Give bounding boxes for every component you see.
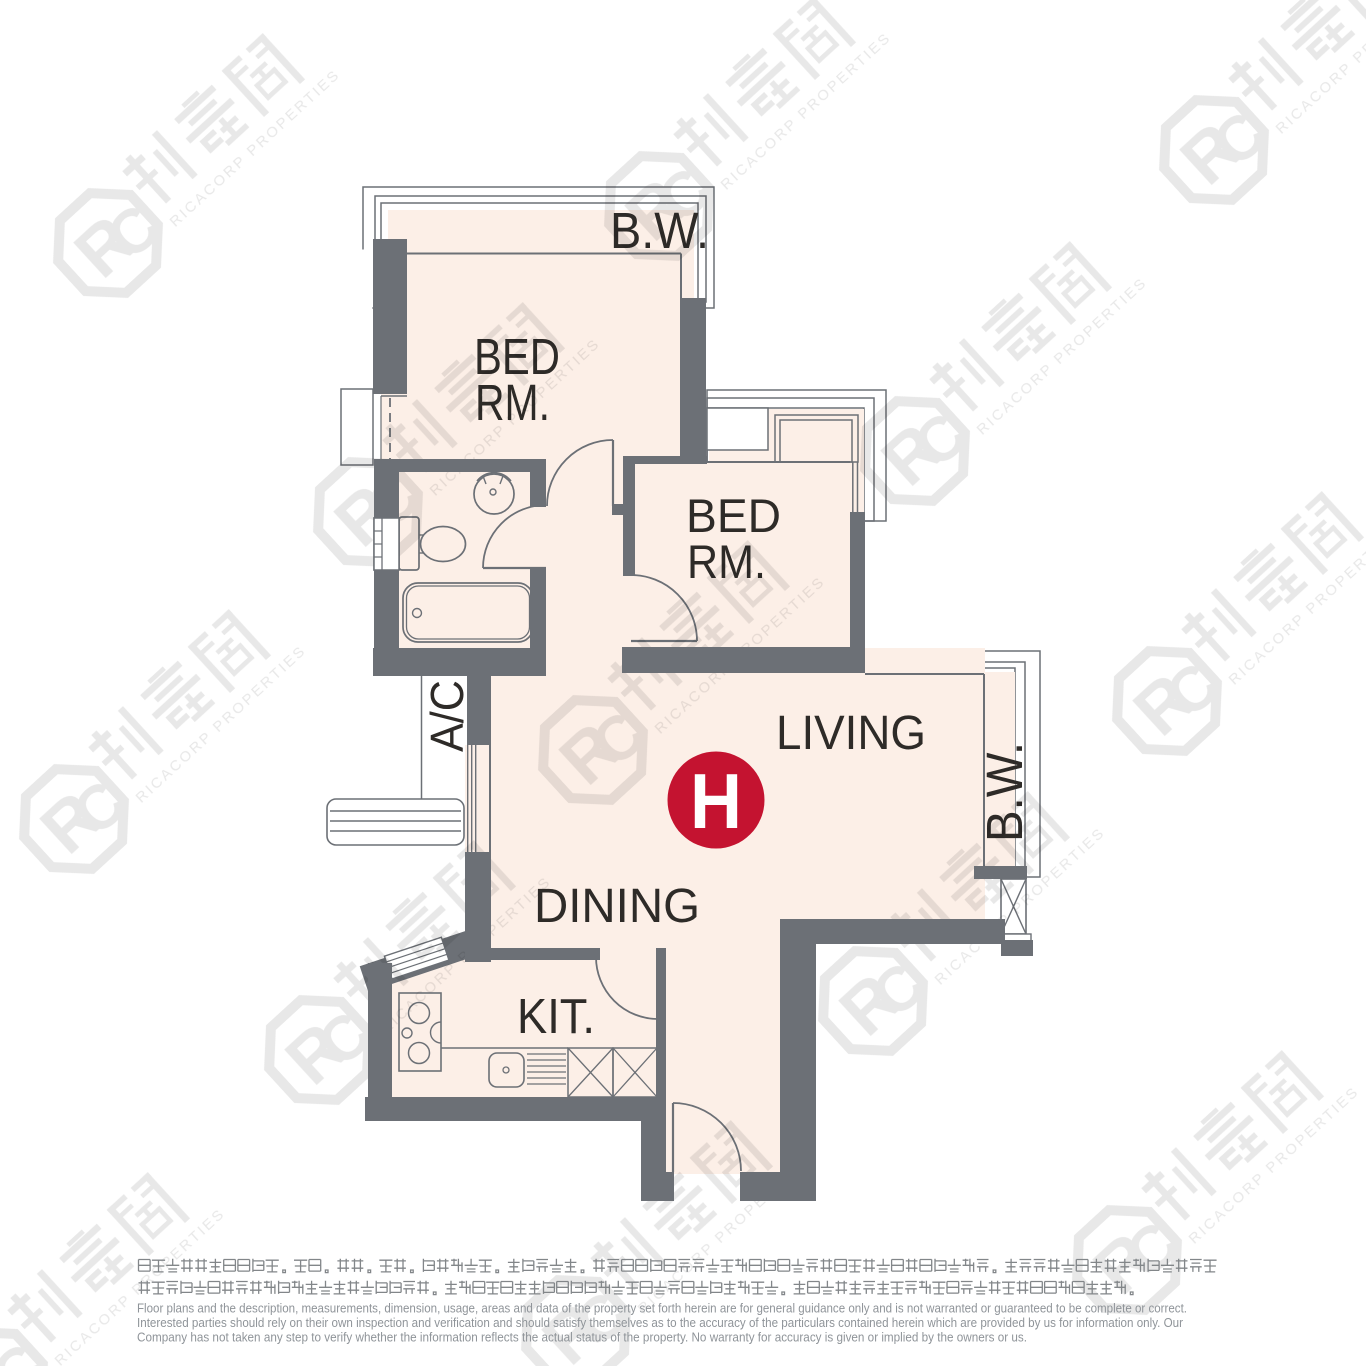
svg-text:Floor plans and the descriptio: Floor plans and the description, measure… — [137, 1301, 1187, 1316]
svg-text:DINING: DINING — [534, 880, 700, 933]
svg-text:KIT.: KIT. — [517, 990, 595, 1044]
svg-text:A/C: A/C — [421, 680, 473, 752]
svg-text:H: H — [690, 757, 742, 845]
svg-text:Company has not taken any step: Company has not taken any step to verify… — [137, 1330, 1027, 1345]
svg-text:LIVING: LIVING — [776, 707, 926, 760]
svg-text:Interested parties should rely: Interested parties should rely on their … — [137, 1315, 1184, 1330]
